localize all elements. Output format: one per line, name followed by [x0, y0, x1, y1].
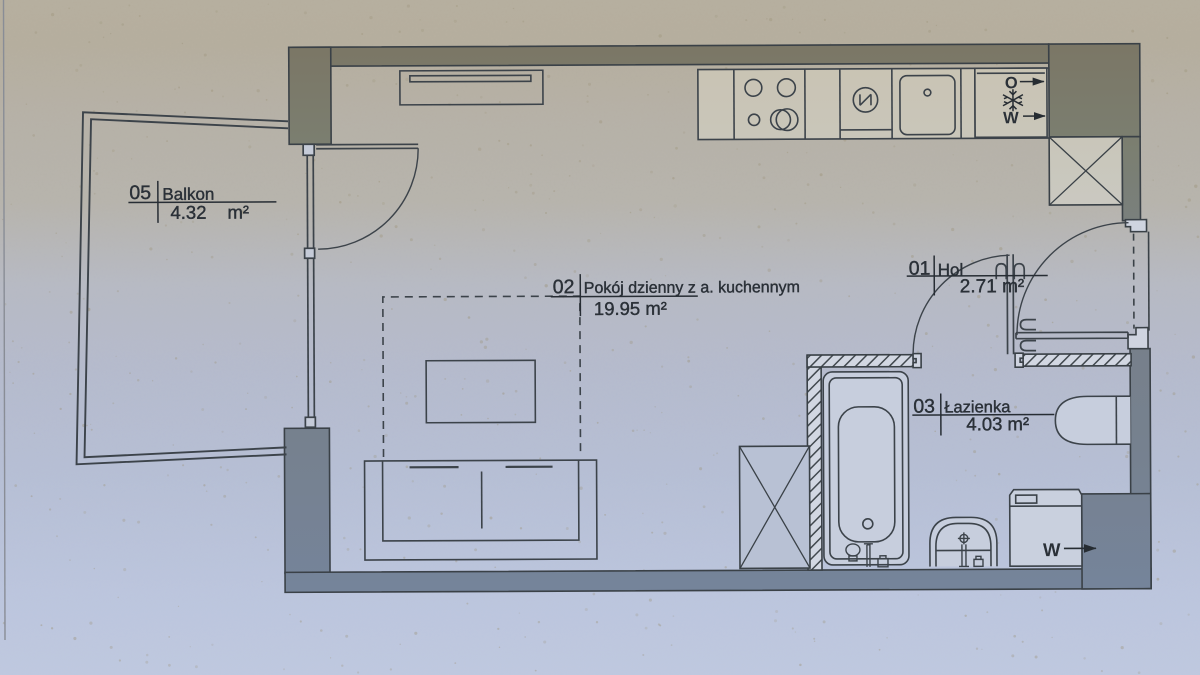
- svg-text:W: W: [1043, 539, 1061, 560]
- svg-text:05: 05: [129, 182, 151, 204]
- svg-text:4.32: 4.32: [170, 202, 206, 223]
- svg-text:4.03 m²: 4.03 m²: [966, 413, 1029, 434]
- svg-text:m²: m²: [227, 202, 249, 223]
- svg-text:02: 02: [553, 276, 575, 298]
- svg-text:O: O: [1005, 74, 1018, 92]
- svg-text:W: W: [1003, 109, 1019, 127]
- svg-text:19.95 m²: 19.95 m²: [594, 298, 667, 319]
- svg-text:Pokój dzienny z a. kuchennym: Pokój dzienny z a. kuchennym: [584, 279, 800, 297]
- svg-text:2.71 m²: 2.71 m²: [960, 276, 1025, 297]
